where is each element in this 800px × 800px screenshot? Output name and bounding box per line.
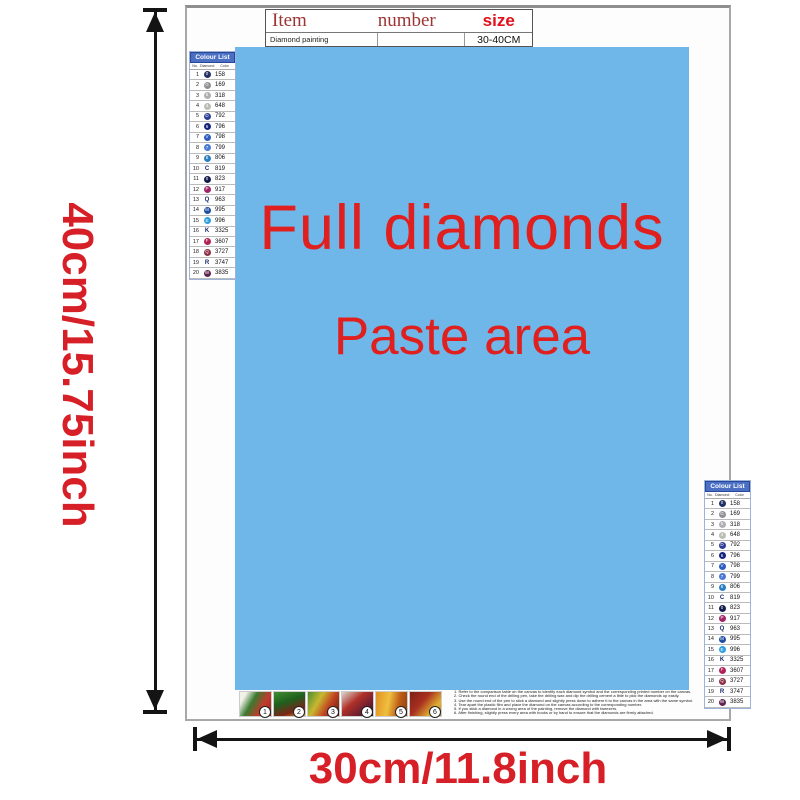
color-row-number: 10 <box>190 166 200 172</box>
arrowhead-down-icon <box>146 690 164 710</box>
color-row-number: 3 <box>705 522 715 528</box>
diamond-symbol-icon: 5 <box>715 521 729 528</box>
dmc-color-code: 648 <box>214 103 235 109</box>
dmc-color-code: 995 <box>214 207 235 213</box>
diamond-color-dot: F <box>204 238 211 245</box>
diamond-color-dot: 0 <box>719 500 726 507</box>
color-row-number: 16 <box>705 657 715 663</box>
diamond-color-dot: 7 <box>204 144 211 151</box>
diamond-color-dot: 0 <box>204 71 211 78</box>
color-row-number: 4 <box>705 532 715 538</box>
color-list-row: 10158 <box>705 499 750 509</box>
color-row-number: 3 <box>190 93 200 99</box>
dmc-color-code: 3607 <box>214 239 235 245</box>
color-row-number: 17 <box>190 239 200 245</box>
diamond-color-dot: E <box>719 646 726 653</box>
color-row-number: 2 <box>705 511 715 517</box>
step-thumbnail-image: 4 <box>341 691 374 717</box>
dmc-color-code: 996 <box>214 218 235 224</box>
diamond-color-dot: W <box>719 699 726 706</box>
dmc-color-code: 917 <box>214 187 235 193</box>
color-row-number: 15 <box>705 647 715 653</box>
color-row-number: 1 <box>705 501 715 507</box>
dmc-color-code: 169 <box>729 511 750 517</box>
diamond-color-dot: P <box>204 186 211 193</box>
dmc-color-code: 648 <box>729 532 750 538</box>
diamond-letter-symbol: R <box>720 689 724 695</box>
color-list-rows: 101582G16935318446485D792667967V79887799… <box>705 499 750 708</box>
paste-area: Full diamonds Paste area <box>235 47 689 690</box>
color-list-columns: No. Diamond Color <box>190 63 235 70</box>
step-thumbnail-image: 5 <box>375 691 408 717</box>
diamond-symbol-icon: 4 <box>715 532 729 539</box>
color-list-row: 66796 <box>190 122 235 132</box>
diamond-symbol-icon: 0 <box>200 176 214 183</box>
diamond-letter-symbol: C <box>720 595 724 601</box>
color-list-row: 44648 <box>705 530 750 540</box>
diamond-symbol-icon: F <box>200 238 214 245</box>
color-list-row: 87799 <box>190 143 235 153</box>
dmc-color-code: 796 <box>214 124 235 130</box>
color-row-number: 7 <box>190 134 200 140</box>
diamond-color-dot: G <box>719 511 726 518</box>
diamond-letter-symbol: Q <box>205 197 210 203</box>
diamond-symbol-icon: 0 <box>715 605 729 612</box>
diamond-symbol-icon: Q <box>715 626 729 632</box>
diamond-symbol-icon: 6 <box>715 552 729 559</box>
diamond-symbol-icon: 8 <box>715 584 729 591</box>
color-list-row: 98806 <box>190 154 235 164</box>
height-dimension-arrow <box>143 8 167 714</box>
diamond-symbol-icon: G <box>715 511 729 518</box>
color-list-rows: 101582G16935318446485D792667967V79887799… <box>190 70 235 279</box>
dmc-color-code: 3325 <box>729 657 750 663</box>
color-list-row: 12P917 <box>705 614 750 624</box>
dmc-color-code: 3325 <box>214 228 235 234</box>
dmc-color-code: 169 <box>214 82 235 88</box>
color-list-row: 20W3835 <box>190 268 235 278</box>
step-number-badge: 2 <box>293 706 305 718</box>
color-row-number: 15 <box>190 218 200 224</box>
dmc-color-code: 3835 <box>214 270 235 276</box>
diamond-color-dot: V <box>719 563 726 570</box>
step-thumbnail-image: 6 <box>409 691 442 717</box>
color-list-row: 2G169 <box>190 80 235 90</box>
color-row-number: 9 <box>190 155 200 161</box>
diamond-symbol-icon: G <box>200 82 214 89</box>
color-list-row: 18Q3727 <box>705 676 750 686</box>
item-table-header: Item number size <box>266 10 532 33</box>
color-list-title: Colour List <box>705 481 750 492</box>
step-number-badge: 5 <box>395 706 407 718</box>
color-row-number: 9 <box>705 584 715 590</box>
color-list-title: Colour List <box>190 52 235 63</box>
color-list-row: 44648 <box>190 101 235 111</box>
diamond-symbol-icon: R <box>200 260 214 266</box>
color-list-col-diamond: Diamond <box>200 63 214 69</box>
dmc-color-code: 3835 <box>729 699 750 705</box>
diamond-color-dot: G <box>204 82 211 89</box>
color-list-row: 13Q963 <box>190 195 235 205</box>
color-list-row: 110823 <box>190 174 235 184</box>
color-list-row: 20W3835 <box>705 697 750 707</box>
diamond-symbol-icon: 0 <box>715 500 729 507</box>
color-list-row: 5D792 <box>190 112 235 122</box>
diamond-symbol-icon: K <box>715 657 729 663</box>
diamond-color-dot: 6 <box>719 552 726 559</box>
color-list-row: 87799 <box>705 572 750 582</box>
diamond-symbol-icon: Q <box>200 249 214 256</box>
color-row-number: 20 <box>705 699 715 705</box>
color-row-number: 5 <box>190 113 200 119</box>
dmc-color-code: 963 <box>214 197 235 203</box>
color-row-number: 13 <box>190 197 200 203</box>
color-list-row: 14M995 <box>190 206 235 216</box>
item-table-header-size: size <box>465 11 532 31</box>
diamond-color-dot: D <box>719 542 726 549</box>
diamond-symbol-icon: M <box>715 636 729 643</box>
diamond-color-dot: 6 <box>204 123 211 130</box>
diamond-symbol-icon: M <box>200 207 214 214</box>
dmc-color-code: 318 <box>214 93 235 99</box>
diamond-symbol-icon: 7 <box>200 144 214 151</box>
dmc-color-code: 799 <box>729 574 750 580</box>
color-list-row: 16K3325 <box>190 227 235 237</box>
color-row-number: 14 <box>190 207 200 213</box>
color-row-number: 11 <box>190 176 200 182</box>
diamond-symbol-icon: Q <box>200 197 214 203</box>
diamond-symbol-icon: P <box>200 186 214 193</box>
diamond-letter-symbol: K <box>720 657 724 663</box>
diamond-color-dot: W <box>204 270 211 277</box>
color-row-number: 14 <box>705 636 715 642</box>
dmc-color-code: 158 <box>729 501 750 507</box>
diamond-symbol-icon: V <box>715 563 729 570</box>
item-table-cell-item: Diamond painting <box>266 33 378 46</box>
diamond-color-dot: V <box>204 134 211 141</box>
diamond-color-dot: 8 <box>719 584 726 591</box>
diamond-symbol-icon: W <box>200 270 214 277</box>
arrow-endcap-bottom <box>143 710 167 714</box>
color-row-number: 20 <box>190 270 200 276</box>
diamond-letter-symbol: Q <box>720 626 725 632</box>
step-number-badge: 4 <box>361 706 373 718</box>
dmc-color-code: 823 <box>214 176 235 182</box>
color-row-number: 2 <box>190 82 200 88</box>
diamond-symbol-icon: W <box>715 699 729 706</box>
color-list-row: 16K3325 <box>705 656 750 666</box>
diamond-color-dot: 0 <box>719 605 726 612</box>
diamond-color-dot: F <box>719 667 726 674</box>
color-list-row: 5D792 <box>705 541 750 551</box>
diamond-symbol-icon: P <box>715 615 729 622</box>
page-root: { "colors": { "paste_blue": "#70b7e9", "… <box>0 0 800 800</box>
diamond-symbol-icon: E <box>200 217 214 224</box>
color-list-row: 35318 <box>190 91 235 101</box>
diamond-symbol-icon: 4 <box>200 103 214 110</box>
diamond-symbol-icon: V <box>200 134 214 141</box>
dmc-color-code: 792 <box>214 113 235 119</box>
color-list-row: 17F3607 <box>190 237 235 247</box>
diamond-symbol-icon: C <box>200 166 214 172</box>
step-number-badge: 3 <box>327 706 339 718</box>
color-list-row: 10158 <box>190 70 235 80</box>
diamond-color-dot: D <box>204 113 211 120</box>
color-list-row: 15E996 <box>190 216 235 226</box>
diamond-color-dot: P <box>719 615 726 622</box>
diamond-symbol-icon: 7 <box>715 573 729 580</box>
canvas-sheet: Item number size Diamond painting 30-40C… <box>185 5 731 721</box>
item-table-row: Diamond painting 30-40CM <box>266 33 532 46</box>
dmc-color-code: 3747 <box>214 260 235 266</box>
color-list-left: Colour List No. Diamond Color 101582G169… <box>189 51 236 280</box>
dmc-color-code: 917 <box>729 616 750 622</box>
dmc-color-code: 819 <box>214 166 235 172</box>
arrow-line-horizontal <box>197 738 727 741</box>
instruction-line: 6. After finishing, slightly press every… <box>454 711 700 715</box>
diamond-color-dot: E <box>204 217 211 224</box>
dmc-color-code: 823 <box>729 605 750 611</box>
diamond-symbol-icon: 5 <box>200 92 214 99</box>
dmc-color-code: 3727 <box>214 249 235 255</box>
color-list-col-no: No. <box>190 63 200 69</box>
color-row-number: 1 <box>190 72 200 78</box>
dmc-color-code: 995 <box>729 636 750 642</box>
diamond-symbol-icon: 6 <box>200 123 214 130</box>
diamond-symbol-icon: K <box>200 228 214 234</box>
paste-area-subtitle: Paste area <box>334 306 590 367</box>
width-dimension-label: 30cm/11.8inch <box>185 744 731 794</box>
diamond-color-dot: M <box>204 207 211 214</box>
color-row-number: 8 <box>190 145 200 151</box>
color-list-row: 12P917 <box>190 185 235 195</box>
diamond-color-dot: Q <box>204 249 211 256</box>
dmc-color-code: 158 <box>214 72 235 78</box>
dmc-color-code: 806 <box>214 155 235 161</box>
height-dimension-label: 40cm/15.75inch <box>52 145 102 585</box>
color-list-row: 7V798 <box>190 133 235 143</box>
color-row-number: 12 <box>190 187 200 193</box>
diamond-symbol-icon: C <box>715 595 729 601</box>
diamond-color-dot: 7 <box>719 573 726 580</box>
color-row-number: 7 <box>705 563 715 569</box>
diamond-color-dot: 5 <box>204 92 211 99</box>
color-row-number: 12 <box>705 616 715 622</box>
dmc-color-code: 792 <box>729 542 750 548</box>
item-table-header-item: Item <box>266 10 378 32</box>
color-list-col-no: No. <box>705 492 715 498</box>
color-list-row: 10C819 <box>190 164 235 174</box>
item-table: Item number size Diamond painting 30-40C… <box>265 9 533 47</box>
diamond-letter-symbol: R <box>205 260 209 266</box>
color-row-number: 11 <box>705 605 715 611</box>
color-list-row: 98806 <box>705 583 750 593</box>
color-row-number: 13 <box>705 626 715 632</box>
color-list-row: 7V798 <box>705 562 750 572</box>
color-row-number: 16 <box>190 228 200 234</box>
dmc-color-code: 819 <box>729 595 750 601</box>
color-list-row: 10C819 <box>705 593 750 603</box>
color-list-col-diamond: Diamond <box>715 492 729 498</box>
diamond-symbol-icon: F <box>715 667 729 674</box>
item-table-header-number: number <box>378 10 466 32</box>
color-row-number: 4 <box>190 103 200 109</box>
diamond-color-dot: 0 <box>204 176 211 183</box>
color-list-row: 19R3747 <box>190 258 235 268</box>
color-list-row: 66796 <box>705 551 750 561</box>
color-list-row: 17F3607 <box>705 666 750 676</box>
arrow-line-vertical <box>154 12 157 710</box>
dmc-color-code: 796 <box>729 553 750 559</box>
arrowhead-up-icon <box>146 12 164 32</box>
dmc-color-code: 3747 <box>729 689 750 695</box>
color-list-row: 35318 <box>705 520 750 530</box>
diamond-symbol-icon: D <box>715 542 729 549</box>
paste-area-title: Full diamonds <box>259 192 664 264</box>
dmc-color-code: 3607 <box>729 668 750 674</box>
color-list-row: 19R3747 <box>705 687 750 697</box>
diamond-symbol-icon: E <box>715 646 729 653</box>
diamond-color-dot: 4 <box>204 103 211 110</box>
color-row-number: 6 <box>705 553 715 559</box>
diamond-color-dot: M <box>719 636 726 643</box>
step-thumbnail-image: 1 <box>239 691 272 717</box>
dmc-color-code: 798 <box>214 134 235 140</box>
diamond-symbol-icon: Q <box>715 678 729 685</box>
color-list-row: 13Q963 <box>705 624 750 634</box>
diamond-letter-symbol: C <box>205 166 209 172</box>
color-list-row: 2G169 <box>705 509 750 519</box>
color-list-row: 14M995 <box>705 635 750 645</box>
color-row-number: 10 <box>705 595 715 601</box>
color-list-row: 110823 <box>705 603 750 613</box>
color-list-col-color: Color <box>214 63 235 69</box>
dmc-color-code: 963 <box>729 626 750 632</box>
color-list-col-color: Color <box>729 492 750 498</box>
color-row-number: 18 <box>705 678 715 684</box>
diamond-symbol-icon: 0 <box>200 71 214 78</box>
step-number-badge: 1 <box>259 706 271 718</box>
color-row-number: 5 <box>705 542 715 548</box>
color-list-row: 15E996 <box>705 645 750 655</box>
color-row-number: 8 <box>705 574 715 580</box>
diamond-symbol-icon: R <box>715 689 729 695</box>
color-list-columns: No. Diamond Color <box>705 492 750 499</box>
dmc-color-code: 3727 <box>729 678 750 684</box>
diamond-symbol-icon: 8 <box>200 155 214 162</box>
diamond-color-dot: 5 <box>719 521 726 528</box>
dmc-color-code: 996 <box>729 647 750 653</box>
item-table-cell-size: 30-40CM <box>465 34 532 46</box>
dmc-color-code: 806 <box>729 584 750 590</box>
color-row-number: 17 <box>705 668 715 674</box>
color-list-right: Colour List No. Diamond Color 101582G169… <box>704 480 751 709</box>
diamond-color-dot: Q <box>719 678 726 685</box>
step-thumbnail-image: 3 <box>307 691 340 717</box>
diamond-letter-symbol: K <box>205 228 209 234</box>
color-row-number: 18 <box>190 249 200 255</box>
diamond-color-dot: 4 <box>719 532 726 539</box>
dmc-color-code: 318 <box>729 522 750 528</box>
color-row-number: 19 <box>705 689 715 695</box>
color-list-row: 18Q3727 <box>190 247 235 257</box>
step-number-badge: 6 <box>429 706 441 718</box>
dmc-color-code: 798 <box>729 563 750 569</box>
item-table-cell-number <box>378 33 466 46</box>
diamond-symbol-icon: D <box>200 113 214 120</box>
dmc-color-code: 799 <box>214 145 235 151</box>
color-row-number: 19 <box>190 260 200 266</box>
step-thumbnails: 123456 <box>239 691 442 717</box>
color-row-number: 6 <box>190 124 200 130</box>
instruction-text: 1. Refer to the comparison table on the … <box>454 690 700 716</box>
diamond-color-dot: 8 <box>204 155 211 162</box>
step-thumbnail-image: 2 <box>273 691 306 717</box>
